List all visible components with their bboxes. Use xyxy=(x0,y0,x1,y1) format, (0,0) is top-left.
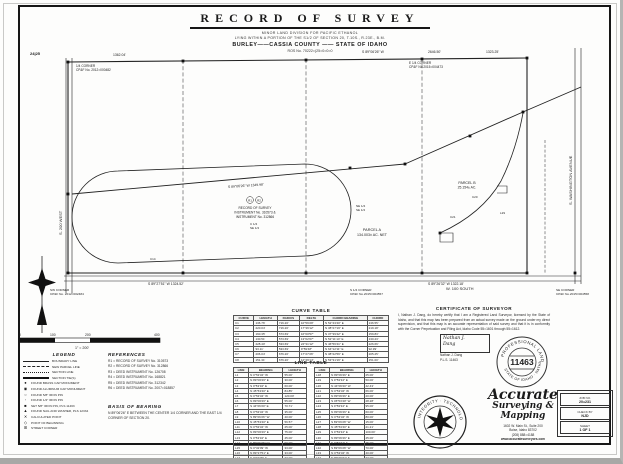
references-panel: REFERENCES R1 = RECORD OF SURVEY No. 310… xyxy=(108,352,228,391)
reference-item: R3 = DEED INSTRUMENT No. 126708 xyxy=(108,370,228,374)
curve-table: CURVELENGTHRADIUSDELTACHORD BEARINGCHORD… xyxy=(233,315,389,363)
signature-area: Nathan J. Dang Nathan J. Dang P.L.S. 114… xyxy=(398,334,550,390)
legend-line-item: SECTION LINE xyxy=(23,370,105,374)
scale-tick-200: 200 xyxy=(85,333,91,337)
iron-pin-12-icon: ◦ xyxy=(23,398,28,402)
legend-point-item: ■SET 5/8" IRON PIN, PLS 11463 xyxy=(23,404,105,408)
signature-line2: Dang xyxy=(443,342,487,348)
basis-of-bearing-panel: BASIS OF BEARING N 89°06'26" E BETWEEN T… xyxy=(108,404,226,420)
job-number-box: JOB NO. 20=231 xyxy=(560,393,610,406)
bearing-top: S 89°06'26" W xyxy=(362,50,385,54)
check-by-value: NJD xyxy=(561,414,609,418)
reference-item: R4 = DEED INSTRUMENT No. 168821 xyxy=(108,375,228,379)
road-label-south: W. 100 SOUTH xyxy=(446,286,474,291)
legend-point-item: ⊞STREET CORNER xyxy=(23,426,105,430)
scale-tick-0: 0 xyxy=(19,333,21,337)
dist-1323: 1323.25' xyxy=(486,50,499,54)
legend-title: LEGEND xyxy=(23,352,105,357)
line-table-title: LINE TABLE xyxy=(233,360,389,365)
street-corner-icon: ⊞ xyxy=(23,426,28,430)
basis-title: BASIS OF BEARING xyxy=(108,404,226,409)
section-corner-label: 24|25 xyxy=(30,51,41,56)
curve-callout-c14: C14 xyxy=(150,257,156,261)
scale-tick-400: 400 xyxy=(154,333,160,337)
line-table-left: LINEBEARINGLENGTH L1N 0°53'34" W55.00'L2… xyxy=(233,367,307,461)
certificate-title: CERTIFICATE OF SURVEYOR xyxy=(398,306,550,311)
line-sample-solid xyxy=(23,361,49,362)
table-row: LINEBEARINGLENGTH xyxy=(234,368,307,373)
pob-line3: INSTRUMENT No. 312866 xyxy=(236,215,274,219)
legend-point-item: ●FOUND BRASS CAP MONUMENT xyxy=(23,381,105,385)
legend-point-item: ▲FOUND NAIL AND WASHER, PLS 12334 xyxy=(23,409,105,413)
e-quarter-corner-cpf: CP&F No.2015=004473 xyxy=(409,65,443,69)
point-of-beginning-icon: ◇ xyxy=(23,421,28,425)
check-by-box: CHECK BY NJD xyxy=(560,407,610,420)
road-label-west: S. 200 WEST xyxy=(58,210,63,235)
scale-bar: 0 100 200 400 1" = 200' xyxy=(19,333,160,350)
compass-star-icon xyxy=(426,407,454,437)
brass-cap-icon: ● xyxy=(23,381,28,385)
legend-point-item: ◦FOUND 1/2" IRON PIN xyxy=(23,398,105,402)
surveyor-stamp: PROFESSIONAL LAND SURVEYOR STATE OF IDAH… xyxy=(494,334,550,390)
table-row: LINEBEARINGLENGTH xyxy=(315,368,388,373)
legend-point-item: ✕CALCULATED POINT xyxy=(23,415,105,419)
basis-text: N 89°06'26" E BETWEEN THE CENTER 1/4 COR… xyxy=(108,411,226,420)
sheet-box: SHEET 1 OF 1 xyxy=(560,421,610,434)
surveyor-pls: P.L.S. 11463 xyxy=(440,358,490,362)
pob-line2: INSTRUMENT No. 310573 & xyxy=(234,210,276,214)
reference-item: R1 = RECORD OF SURVEY No. 310573 xyxy=(108,359,228,363)
parcel-b-area: 25.154± AC. xyxy=(458,186,477,190)
scale-tick-100: 100 xyxy=(50,333,56,337)
references-title: REFERENCES xyxy=(108,352,228,357)
map-linework xyxy=(42,48,581,333)
w-quarter-corner-cpf: CP&F No. 2012=000482 xyxy=(76,68,111,72)
bearing-bottom-left: S 89°27'51" W 1324.52' xyxy=(148,282,184,286)
legend-line-item: SECTION TIE(S) xyxy=(23,376,105,380)
reference-item: R5 = DEED INSTRUMENT No. 312342 xyxy=(108,381,228,385)
nail-washer-icon: ▲ xyxy=(23,409,28,413)
certificate-body: I, Nathan J. Dang, do hereby certify tha… xyxy=(398,313,550,331)
curve-table-title: CURVE TABLE xyxy=(233,308,389,313)
se-corner-cpf: CP&F No.2015=004558 xyxy=(556,292,589,296)
ref-bubble-r2: R2 xyxy=(257,198,261,202)
dist-2646: 2646.50' xyxy=(428,50,441,54)
line-table-right: LINEBEARINGLENGTH L18N 89°06'26" E25.00'… xyxy=(314,367,388,461)
pob-reference-bubbles: R1 R2 xyxy=(247,197,263,204)
stamp-number: 11463 xyxy=(510,357,534,367)
line-callout-l29: L29 xyxy=(500,211,505,215)
line-table-right-header: LINEBEARINGLENGTH xyxy=(315,368,388,373)
aluminum-cap-icon: ◉ xyxy=(23,387,28,391)
firm-block: INTEGRITY · TECHNOLOGY · ACCURACY Accura… xyxy=(420,386,616,450)
parcel-a-name: PARCEL A xyxy=(363,228,382,232)
firm-website: www.accuratesurveyors.com xyxy=(468,437,578,441)
table-row: L17S 0°32'09" E33.00' xyxy=(234,456,307,461)
legend-point-item: ◇POINT OF BEGINNING xyxy=(23,421,105,425)
bearing-bottom-right: S 89°26'32" W 1322.18' xyxy=(428,282,464,286)
quarter-label-se2: SE 1/4 xyxy=(356,208,365,212)
set-pin-icon: ■ xyxy=(23,404,28,408)
dist-1362: 1362.04' xyxy=(113,53,126,57)
line-table-left-body: L1N 0°53'34" W55.00'L2N 89°06'26" E30.00… xyxy=(234,373,307,461)
curve-callout-c20: C20 xyxy=(472,195,478,199)
legend-line-item: NEW PARCEL LINE xyxy=(23,365,105,369)
line-table-right-body: L18N 89°06'26" E25.00'L19S 0°53'34" E50.… xyxy=(315,373,388,461)
legend-line-item: BOUNDARY LINE xyxy=(23,359,105,363)
sw-corner-cpf: CP&F No. 2012=002484 xyxy=(50,292,84,296)
legend-panel: LEGEND BOUNDARY LINE NEW PARCEL LINE SEC… xyxy=(23,352,105,432)
calculated-point-icon: ✕ xyxy=(23,415,28,419)
line-table-left-header: LINEBEARINGLENGTH xyxy=(234,368,307,373)
iron-pin-58-icon: ○ xyxy=(23,393,28,397)
curve-table-panel: CURVE TABLE CURVELENGTHRADIUSDELTACHORD … xyxy=(233,308,389,363)
job-number-value: 20=231 xyxy=(561,400,609,404)
reference-item: R2 = RECORD OF SURVEY No. 312866 xyxy=(108,364,228,368)
bearing-mid: S 89°06'26" W 1349.98' xyxy=(228,182,264,189)
line-table-panel: LINE TABLE LINEBEARINGLENGTH L1N 0°53'34… xyxy=(233,360,389,461)
line-sample-thick xyxy=(23,377,49,379)
curve-table-body: C1136.76'716.20'10°56'29"N 52°43'40" E13… xyxy=(234,321,389,363)
job-info-block: JOB NO. 20=231 CHECK BY NJD SHEET 1 OF 1 xyxy=(557,390,613,437)
ref-bubble-r1: R1 xyxy=(248,198,252,202)
firm-seal: INTEGRITY · TECHNOLOGY · ACCURACY xyxy=(412,394,468,450)
parcel-a-area: 134.003± AC. NET xyxy=(357,233,388,237)
scale-note: 1" = 200' xyxy=(75,346,89,350)
s-quarter-corner-cpf: CP&F No.2015=004557 xyxy=(350,292,383,296)
certificate-panel: CERTIFICATE OF SURVEYOR I, Nathan J. Dan… xyxy=(398,306,550,390)
signature-box: Nathan J. Dang xyxy=(440,334,490,353)
parcel-b-name: PARCEL B xyxy=(458,181,476,185)
line-sample-dashdot xyxy=(23,366,49,367)
road-label-washington: S. WASHINGTON AVENUE xyxy=(568,155,573,205)
curve-callout-c21: C21 xyxy=(450,215,456,219)
reference-item: R6 = DEED INSTRUMENT No. 2007=018857 xyxy=(108,386,228,390)
legend-point-item: ◉FOUND ALUMINUM CAP MONUMENT xyxy=(23,387,105,391)
sheet-value: 1 OF 1 xyxy=(561,428,609,432)
line-sample-dash xyxy=(23,372,49,373)
table-row: L34N 89°26'32" E33.00' xyxy=(315,456,388,461)
survey-sheet: RECORD OF SURVEY MINOR LAND DIVISION FOR… xyxy=(0,0,623,464)
quarter-label-se: SE 1/4 xyxy=(250,226,259,230)
pob-line1: RECORD OF SURVEY xyxy=(238,206,272,210)
legend-point-item: ○FOUND 5/8" IRON PIN xyxy=(23,393,105,397)
